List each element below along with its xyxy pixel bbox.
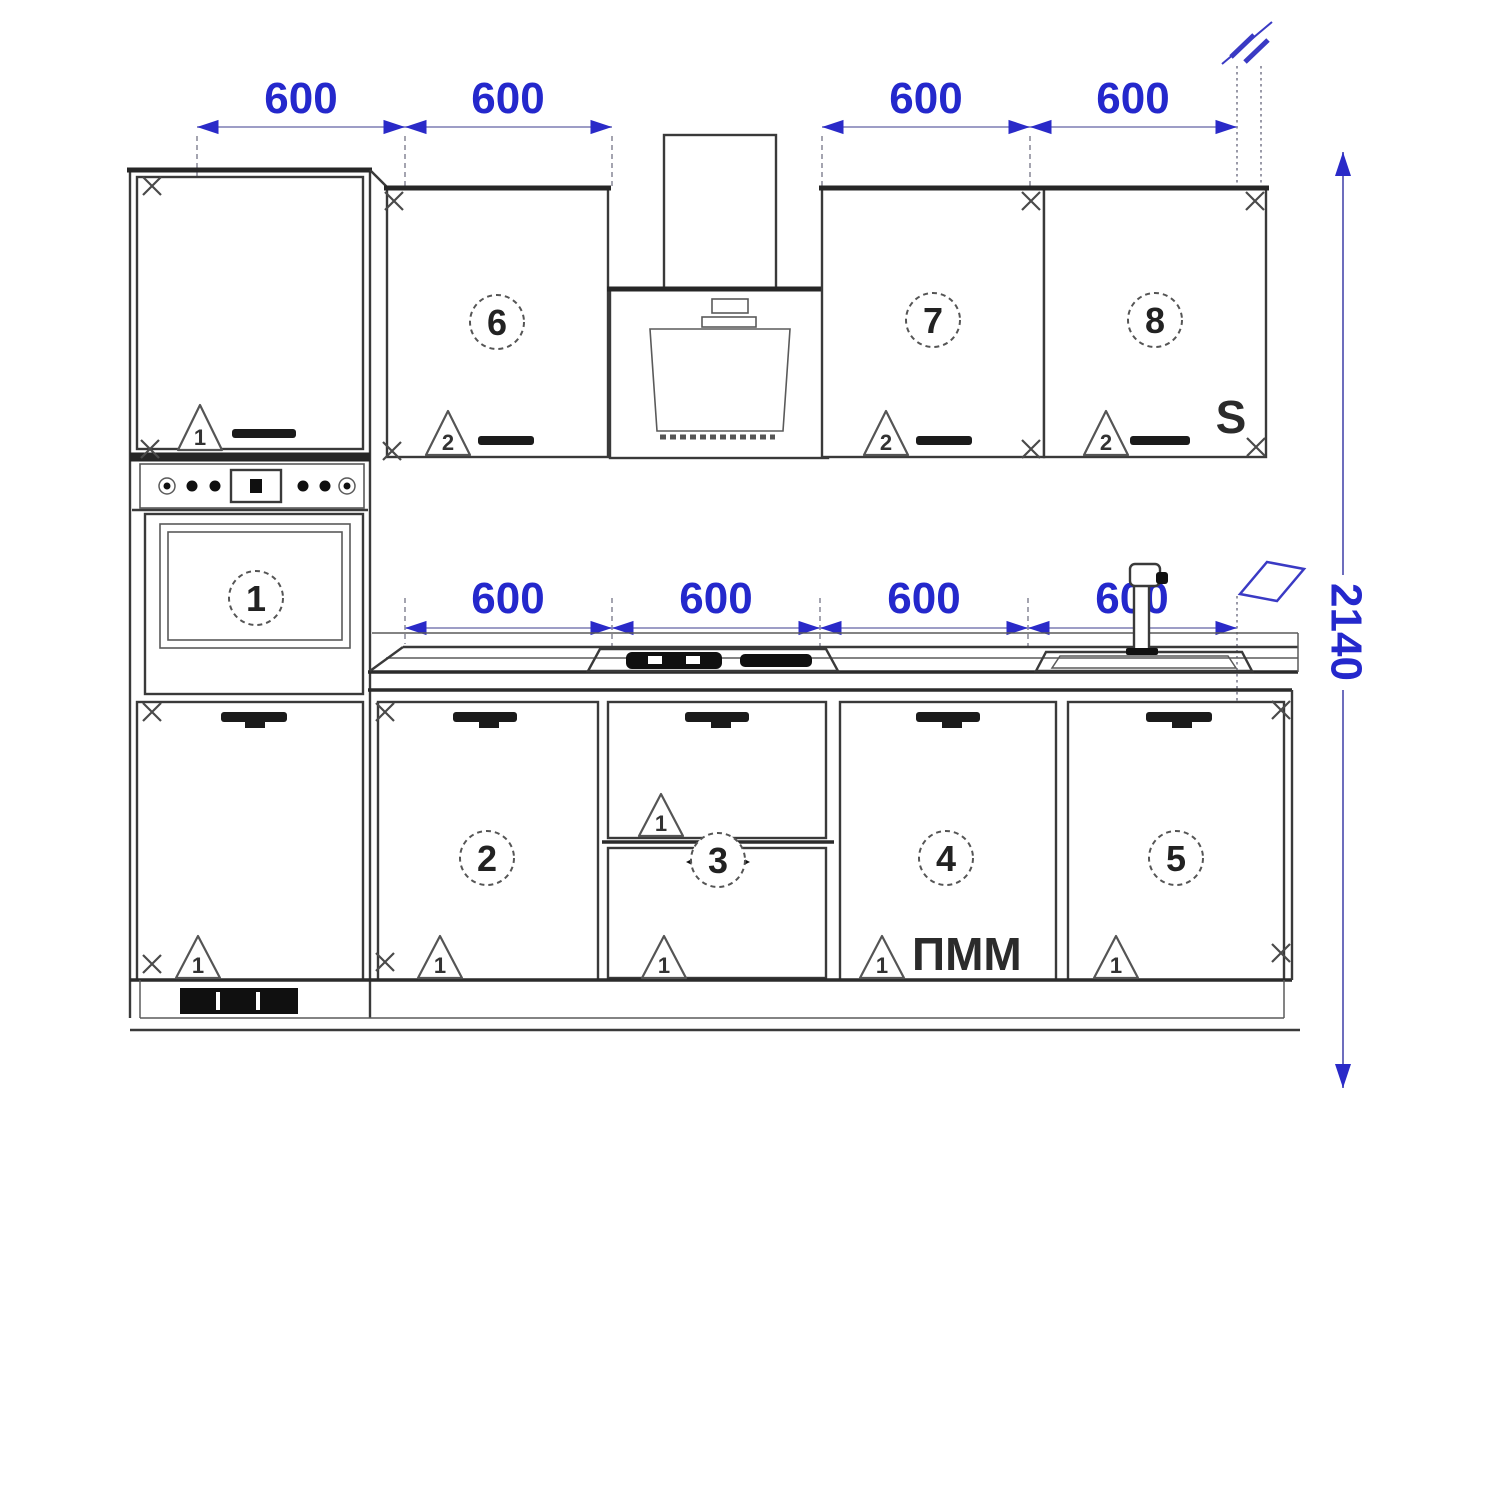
sink-marker-label: S	[1216, 391, 1247, 443]
base-cabinet-3-handle	[685, 712, 749, 722]
cooktop-burner-left	[626, 652, 722, 669]
base-cabinet-4-handle	[916, 712, 980, 722]
tall-lower-door-handle	[221, 712, 287, 722]
kitchen-elevation-screenshot: 600 600 600 600 600 600 600 600 2140	[0, 0, 1500, 1500]
dishwasher-label: ПММ	[912, 928, 1022, 980]
unit-label-4: 4	[919, 831, 973, 885]
dim-counter-3: 600	[887, 574, 960, 623]
svg-text:1: 1	[1110, 953, 1122, 978]
svg-text:2: 2	[880, 430, 892, 455]
svg-text:5: 5	[1166, 838, 1186, 879]
svg-text:3: 3	[708, 840, 728, 881]
svg-text:1: 1	[192, 953, 204, 978]
hood-chimney	[664, 135, 776, 288]
cooktop-burner-right	[740, 654, 812, 667]
oven-knob	[187, 481, 198, 492]
unit-label-1: 1	[229, 571, 283, 625]
tall-cabinet-lower-door	[137, 702, 363, 980]
cooker-hood	[607, 135, 831, 458]
height-dimension: 2140	[1322, 152, 1371, 1088]
cooktop	[588, 649, 838, 671]
countertop-left-bevel	[370, 647, 403, 671]
base-cabinet-5-handle	[1146, 712, 1212, 722]
oven-knob	[320, 481, 331, 492]
unit-label-2: 2	[460, 831, 514, 885]
svg-text:2: 2	[442, 430, 454, 455]
dim-top-4: 600	[1096, 74, 1169, 123]
svg-text:6: 6	[487, 302, 507, 343]
svg-text:1: 1	[876, 953, 888, 978]
unit-label-7: 7	[906, 293, 960, 347]
svg-text:8: 8	[1145, 300, 1165, 341]
wall-cabinet-6-handle	[478, 436, 534, 445]
dim-counter-1: 600	[471, 574, 544, 623]
base-cabinet-2-handle	[453, 712, 517, 722]
tall-cabinet-upper-door	[137, 177, 363, 449]
dim-top-3: 600	[889, 74, 962, 123]
svg-text:1: 1	[658, 953, 670, 978]
top-dimension-row: 600 600 600 600	[197, 74, 1237, 127]
kitchen-elevation-drawing: 600 600 600 600 600 600 600 600 2140	[0, 0, 1500, 1500]
dim-top-2: 600	[471, 74, 544, 123]
dim-counter-2: 600	[679, 574, 752, 623]
dim-height: 2140	[1322, 583, 1371, 681]
unit-label-8: 8	[1128, 293, 1182, 347]
faucet-spout	[1130, 564, 1160, 586]
unit-label-5: 5	[1149, 831, 1203, 885]
break-mark-icon	[1222, 22, 1272, 64]
svg-text:1: 1	[246, 578, 266, 619]
oven-knob	[210, 481, 221, 492]
svg-text:7: 7	[923, 300, 943, 341]
svg-text:2: 2	[1100, 430, 1112, 455]
level-mark-icon	[1240, 562, 1304, 601]
hood-glass-panel	[650, 329, 790, 431]
wall-cabinet-7-handle	[916, 436, 972, 445]
tall-upper-door-handle	[232, 429, 296, 438]
unit-label-3: 3	[691, 833, 745, 887]
svg-text:4: 4	[936, 838, 956, 879]
oven-knob	[298, 481, 309, 492]
svg-text:1: 1	[655, 811, 667, 836]
unit-label-6: 6	[470, 295, 524, 349]
hood-switch	[712, 299, 748, 313]
wall-cabinet-8-handle	[1130, 436, 1190, 445]
counter-dimension-row: 600 600 600 600	[405, 574, 1237, 628]
dim-top-1: 600	[264, 74, 337, 123]
svg-text:1: 1	[194, 425, 206, 450]
plinth-vent-grille	[180, 988, 298, 1014]
svg-text:2: 2	[477, 838, 497, 879]
svg-text:1: 1	[434, 953, 446, 978]
